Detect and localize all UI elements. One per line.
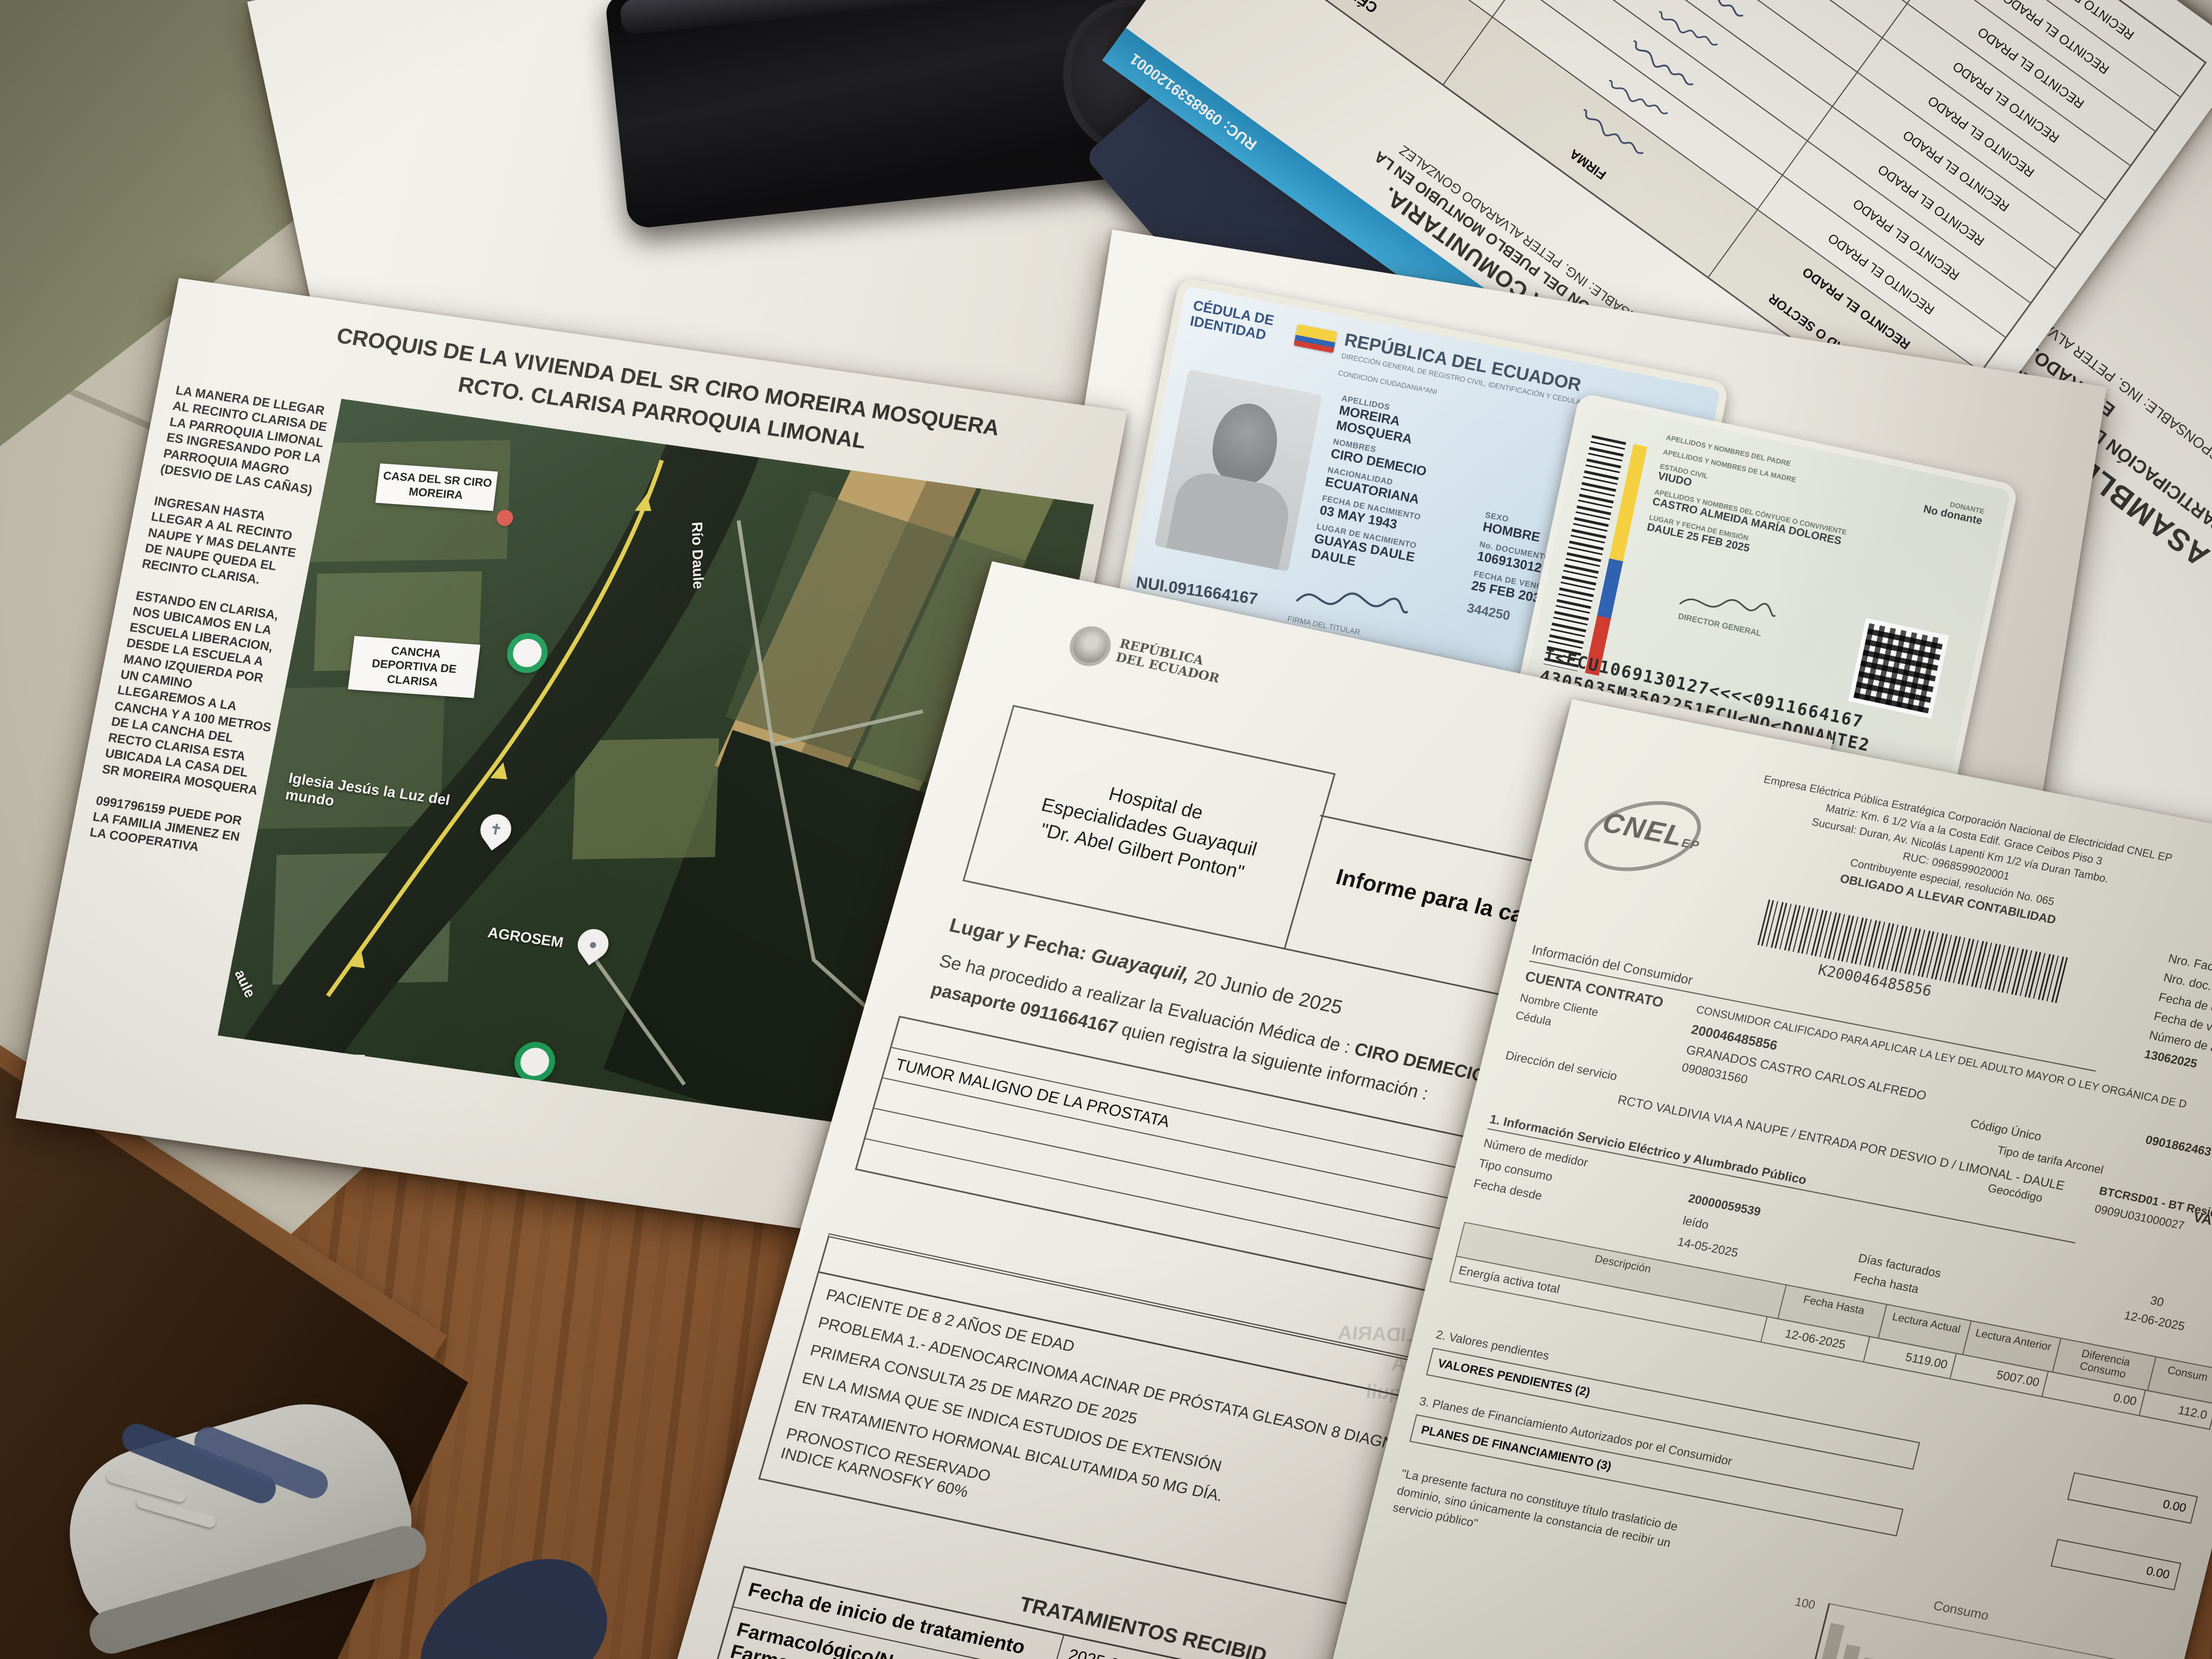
- map-label-cancha: CANCHA DEPORTIVA DE CLARISA: [348, 636, 480, 698]
- cedula-portrait: [1154, 370, 1322, 572]
- valores-pendientes-valor: 0.00: [2067, 1472, 2198, 1524]
- map-label-rio-daule: Río Daule: [688, 521, 706, 589]
- planes-valor: 0.00: [2050, 1539, 2181, 1590]
- desk-photo-scene: ASAMBLEA COMUNITARIA. Y PARTICIPACIÓN DE…: [0, 0, 2212, 1659]
- qr-code: [1848, 618, 1949, 718]
- fecha-hasta: 12-06-2025: [2123, 1308, 2186, 1334]
- ecuador-flag-icon: [1294, 324, 1337, 353]
- tipo-consumo: leído: [1681, 1214, 1710, 1232]
- medidor: 20000059539: [1687, 1191, 1762, 1219]
- croquis-para-1: LA MANERA DE LLEGAR AL RECINTO CLARISA D…: [159, 382, 335, 499]
- croquis-para-4: 0991796159 PUEDE POR LA FAMILIA JIMENEZ …: [88, 792, 255, 862]
- chart-y-top: 100: [1793, 1595, 1816, 1612]
- lugar-value: Guayaquil,: [1089, 944, 1193, 986]
- ecuador-crest-icon: [1065, 623, 1116, 670]
- consumo-chart: Consumo 100 0 junjulagosepoctnovdicenefe…: [1731, 1562, 2141, 1659]
- map-label-escuela: ESCUELA LIBERACION: [218, 1049, 365, 1080]
- cnel-logo: CNELEP: [1578, 787, 1734, 883]
- map-label-casa: CASA DEL SR CIRO MOREIRA: [376, 463, 498, 511]
- dias-facturados: 30: [2149, 1293, 2165, 1310]
- lbl-direccion-servicio: Dirección del servicio: [1504, 1048, 1618, 1084]
- hospital-name: Hospital de Especialidades Guayaquil "Dr…: [1027, 767, 1271, 887]
- croquis-para-3: ESTANDO EN CLARISA, NOS UBICAMOS EN LA E…: [101, 588, 295, 799]
- lbl-codigo-unico: Código Único: [1969, 1116, 2043, 1144]
- fecha-desde: 14-05-2025: [1676, 1234, 1740, 1260]
- cedula-doc-type: CÉDULA DE IDENTIDAD: [1189, 297, 1296, 347]
- codigo-unico: 0901862463: [2144, 1133, 2212, 1159]
- lbl-cedula: Cédula: [1514, 1009, 1553, 1029]
- croquis-para-2: INGRESAN HASTA LLEGAR A AL RECINTO NAUPE…: [140, 493, 313, 593]
